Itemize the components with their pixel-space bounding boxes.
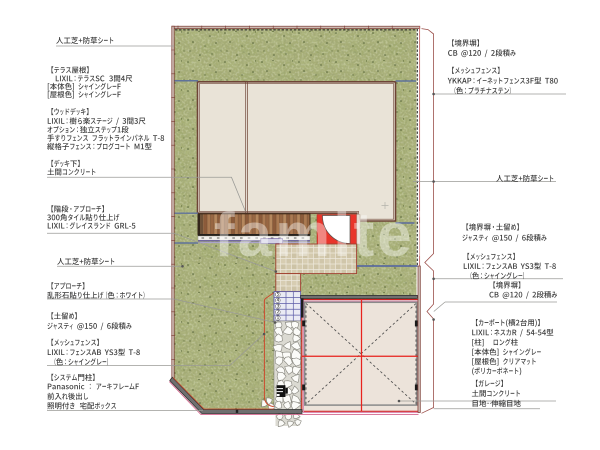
svg-text:famitei: famitei xyxy=(214,201,435,270)
